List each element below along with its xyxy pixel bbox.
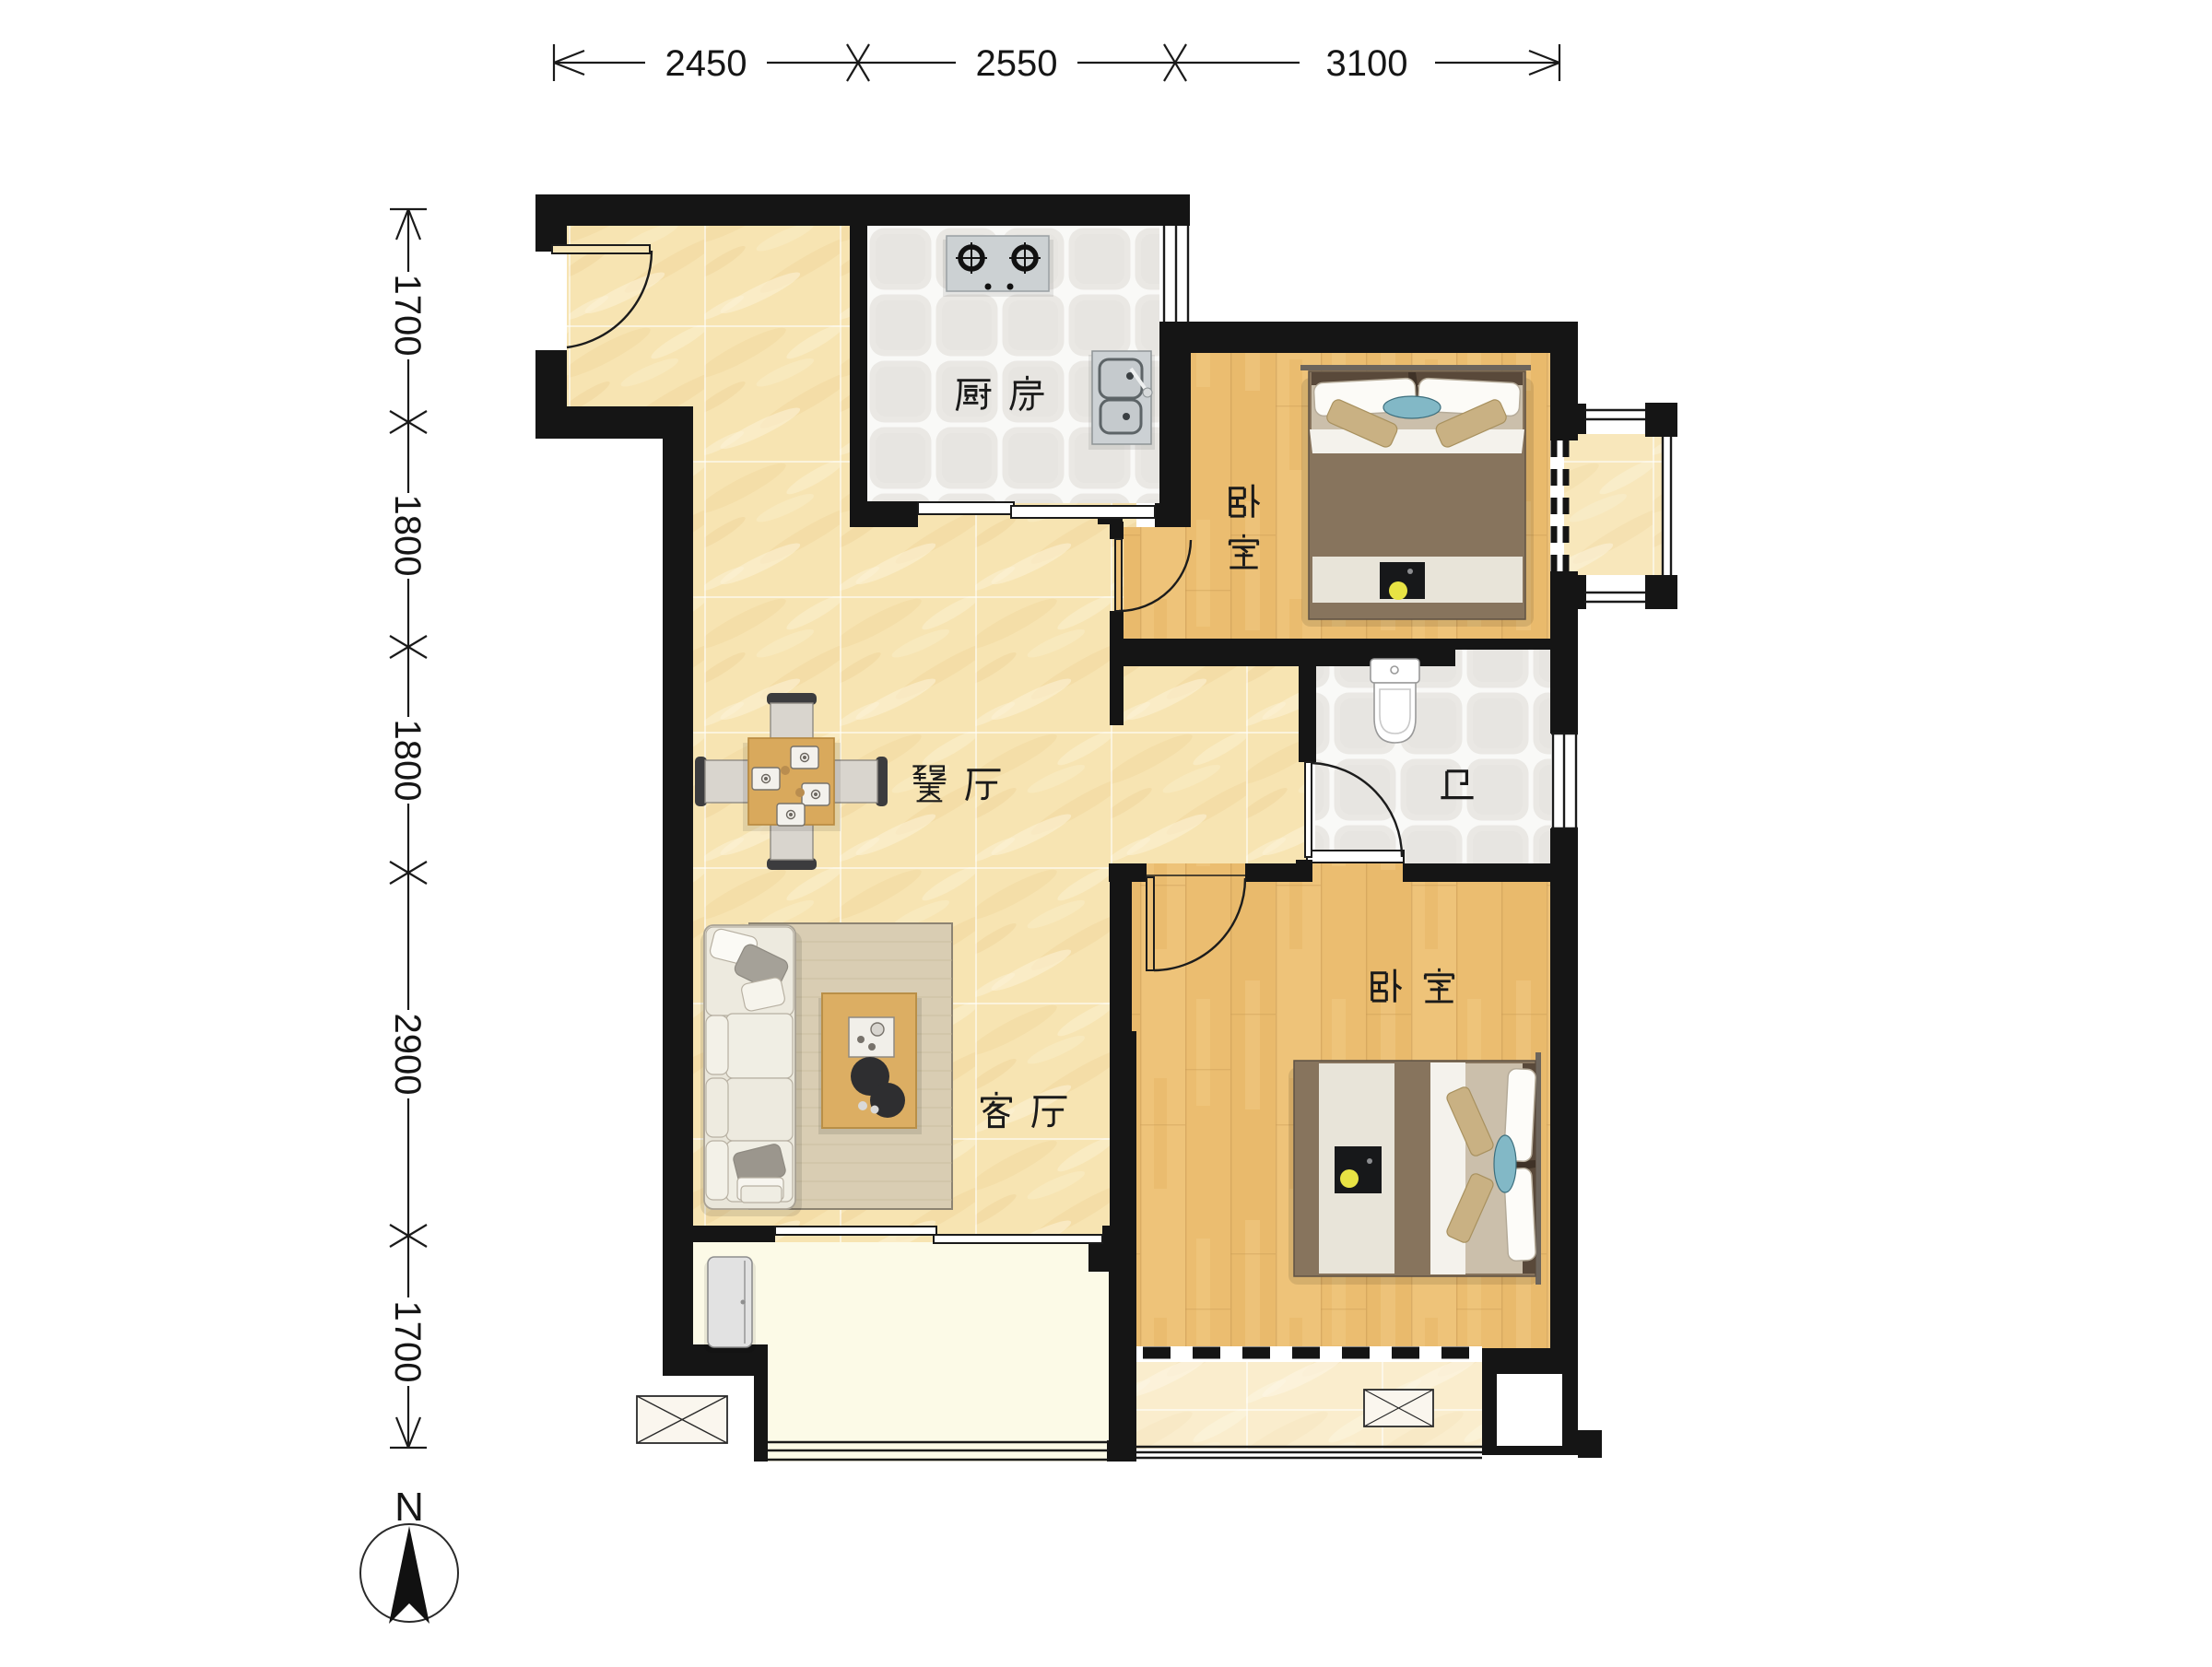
svg-text:2450: 2450 xyxy=(665,43,747,84)
svg-text:1700: 1700 xyxy=(387,275,428,357)
svg-text:1800: 1800 xyxy=(387,720,428,802)
svg-text:2900: 2900 xyxy=(387,1014,428,1096)
svg-text:3100: 3100 xyxy=(1326,43,1408,84)
svg-text:N: N xyxy=(394,1485,424,1530)
svg-text:1700: 1700 xyxy=(387,1301,428,1383)
svg-text:2550: 2550 xyxy=(976,43,1058,84)
svg-text:1800: 1800 xyxy=(387,495,428,577)
